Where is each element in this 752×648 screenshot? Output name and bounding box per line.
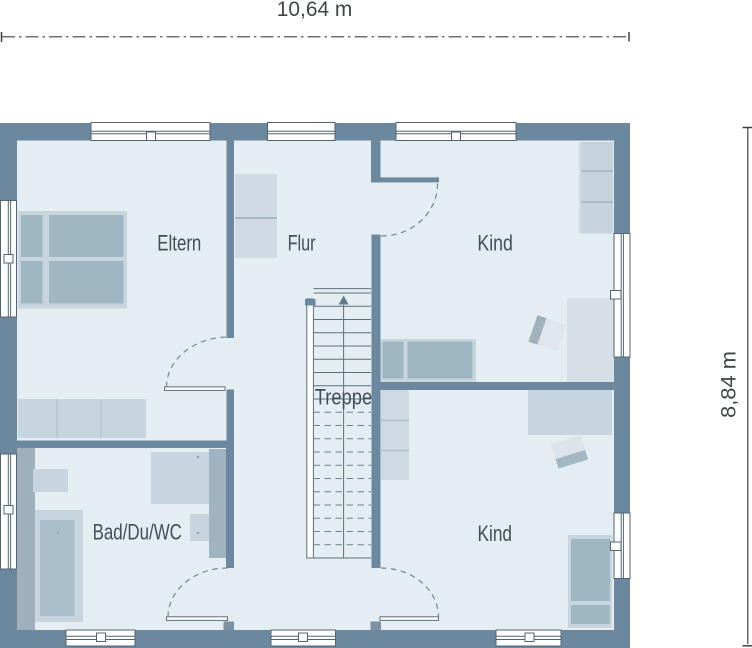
svg-text:Bad/Du/WC: Bad/Du/WC	[93, 520, 182, 545]
svg-text:Eltern: Eltern	[157, 231, 201, 256]
svg-text:Kind: Kind	[477, 231, 513, 256]
svg-text:Treppe: Treppe	[315, 385, 373, 410]
svg-text:10,64 m: 10,64 m	[277, 0, 353, 21]
svg-text:8,84 m: 8,84 m	[718, 351, 741, 418]
svg-text:Flur: Flur	[288, 231, 316, 256]
svg-text:Kind: Kind	[478, 521, 513, 546]
